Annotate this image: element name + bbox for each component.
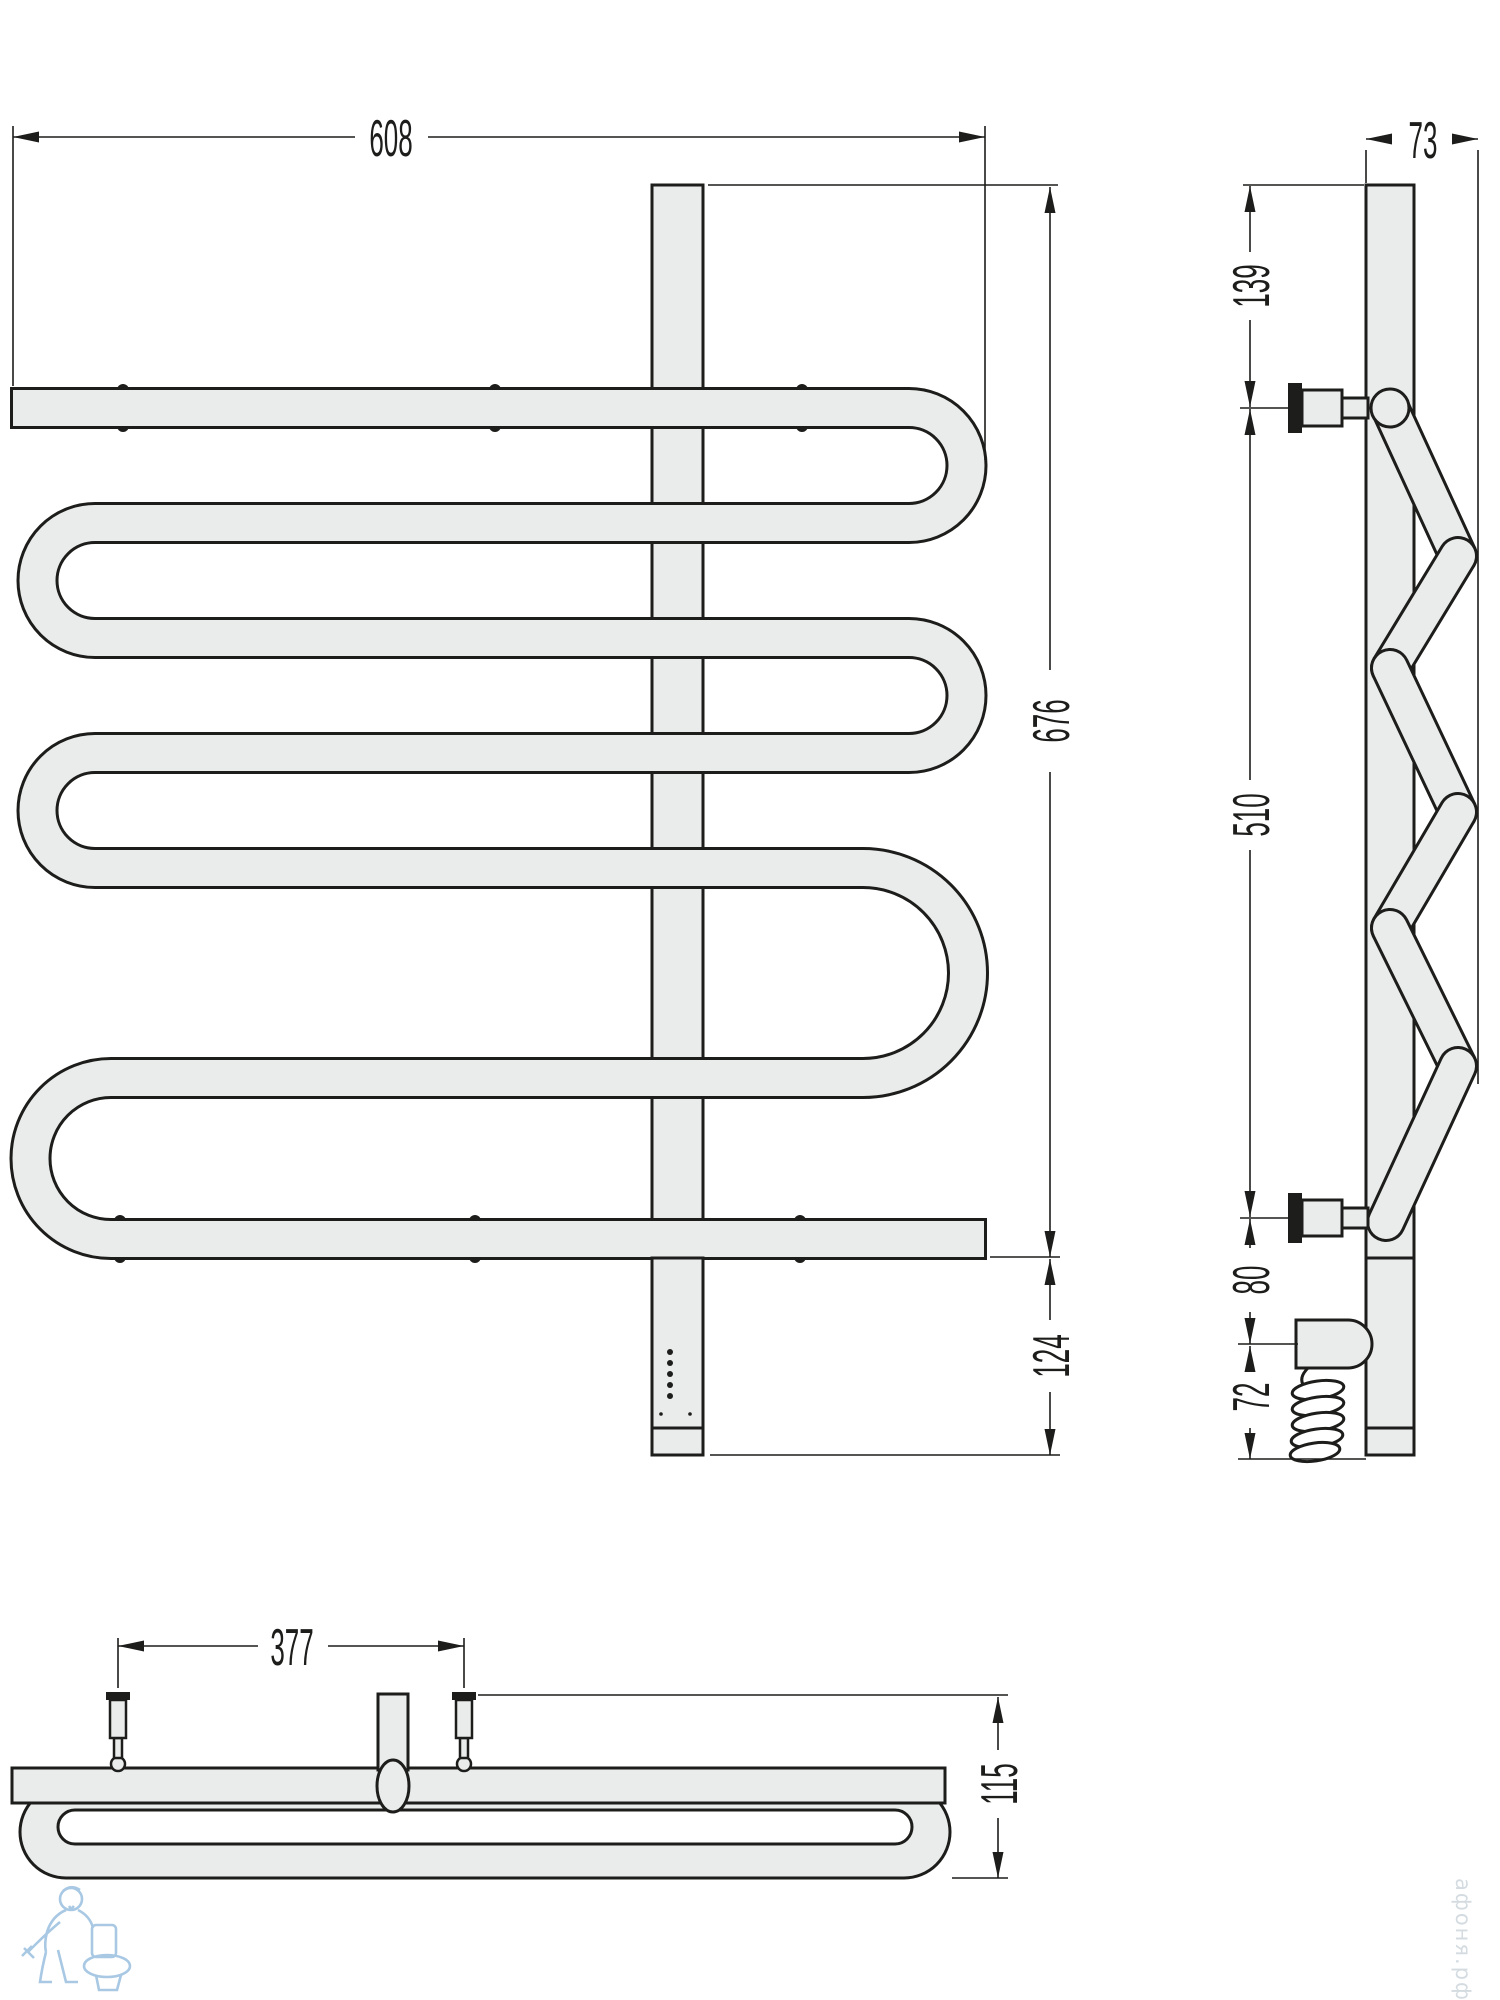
svg-text:510: 510 <box>1222 793 1280 836</box>
side-bracket-top <box>1288 383 1368 433</box>
top-post-boss <box>377 1760 409 1812</box>
electric-element <box>1296 1320 1372 1368</box>
top-bracket-left <box>106 1692 130 1771</box>
dim-label-510: 510 <box>1222 793 1280 836</box>
dim-label-height-676: 676 <box>1022 699 1080 742</box>
technical-drawing: 608 676 124 73 139 510 80 72 377 115 <box>0 0 1500 2000</box>
svg-text:377: 377 <box>270 1618 313 1676</box>
dim-label-115: 115 <box>970 1763 1028 1804</box>
drawing-canvas: 608 676 124 73 139 510 80 72 377 115 <box>0 0 1500 2000</box>
svg-text:124: 124 <box>1022 1334 1080 1377</box>
top-wall-bar <box>12 1768 945 1803</box>
coiled-cable <box>1289 1377 1345 1464</box>
svg-text:676: 676 <box>1022 699 1080 742</box>
top-bracket-right <box>452 1692 476 1771</box>
front-heater-cap <box>652 1428 703 1455</box>
side-view <box>1288 185 1458 1464</box>
front-heater-section <box>652 1258 703 1428</box>
svg-text:115: 115 <box>970 1763 1028 1804</box>
svg-text:608: 608 <box>369 109 412 167</box>
dim-label-width-608: 608 <box>369 109 412 167</box>
site-watermark: афоня.рф <box>1451 1878 1475 2000</box>
front-view <box>10 185 987 1455</box>
svg-text:80: 80 <box>1222 1266 1280 1295</box>
top-view <box>12 1692 950 1878</box>
dim-label-139: 139 <box>1222 264 1280 307</box>
dim-label-377: 377 <box>270 1618 313 1676</box>
side-heater-cap <box>1366 1428 1414 1455</box>
plumber-logo-watermark <box>22 1887 130 1990</box>
svg-text:афоня.рф: афоня.рф <box>1451 1878 1475 2000</box>
side-bracket-bottom <box>1288 1193 1368 1243</box>
dim-label-bottom-124: 124 <box>1022 1334 1080 1377</box>
side-top-rail-section <box>1371 389 1409 427</box>
dim-label-72: 72 <box>1222 1383 1280 1412</box>
dim-label-depth-73: 73 <box>1409 111 1438 169</box>
svg-text:73: 73 <box>1409 111 1438 169</box>
serpentine-tube <box>13 408 984 1239</box>
svg-text:72: 72 <box>1222 1383 1280 1412</box>
dim-label-80: 80 <box>1222 1266 1280 1295</box>
svg-text:139: 139 <box>1222 264 1280 307</box>
